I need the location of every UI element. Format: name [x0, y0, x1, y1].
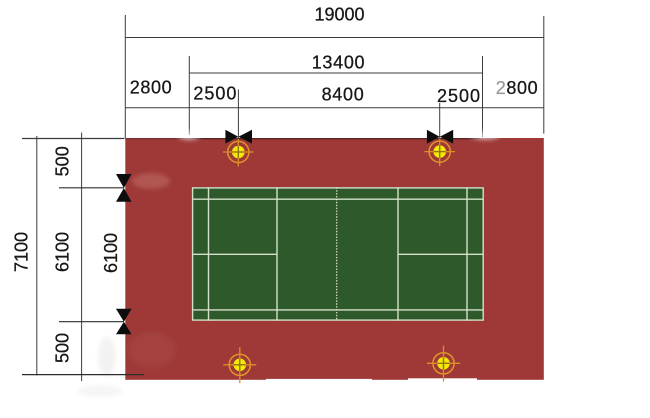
svg-text:500: 500 — [53, 333, 73, 363]
svg-text:8400: 8400 — [322, 84, 365, 104]
svg-text:13400: 13400 — [312, 52, 366, 72]
svg-text:7100: 7100 — [12, 232, 32, 272]
svg-text:6100: 6100 — [101, 233, 121, 273]
svg-text:2500: 2500 — [437, 86, 481, 106]
svg-text:19000: 19000 — [314, 5, 364, 25]
svg-text:2800: 2800 — [496, 78, 538, 98]
svg-text:6100: 6100 — [53, 232, 73, 272]
svg-text:500: 500 — [53, 146, 73, 176]
svg-text:2800: 2800 — [130, 77, 172, 97]
svg-text:2500: 2500 — [193, 84, 237, 104]
